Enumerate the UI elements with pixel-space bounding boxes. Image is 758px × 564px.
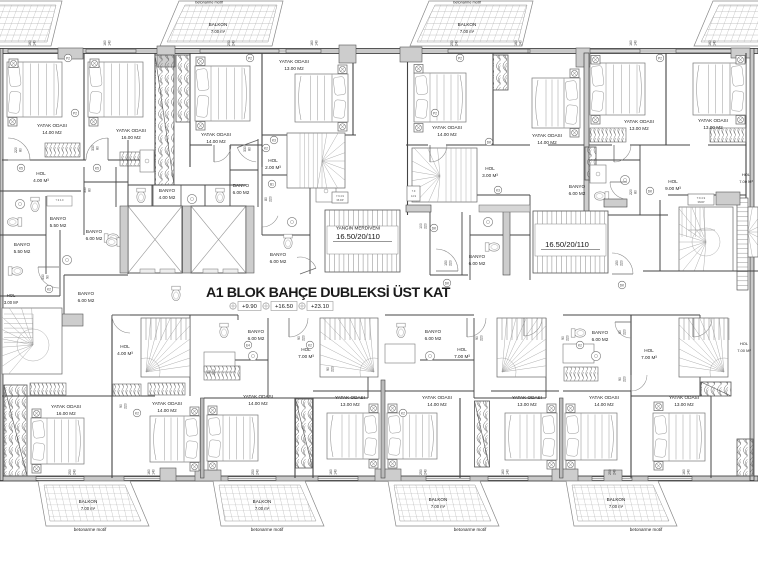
svg-text:160: 160	[310, 40, 314, 46]
svg-text:+16.50: +16.50	[275, 304, 293, 310]
svg-text:7.00 m²: 7.00 m²	[609, 504, 624, 509]
svg-text:P2: P2	[433, 111, 437, 115]
svg-text:140: 140	[315, 40, 319, 46]
svg-text:13.00 M2: 13.00 M2	[674, 402, 694, 407]
svg-text:K5: K5	[19, 166, 23, 170]
svg-text:P2: P2	[458, 56, 462, 60]
svg-text:160: 160	[629, 40, 633, 46]
svg-text:14.9: 14.9	[411, 194, 417, 198]
svg-text:250: 250	[608, 469, 612, 475]
svg-text:YATAK ODASI: YATAK ODASI	[201, 132, 231, 137]
svg-text:220: 220	[212, 369, 216, 375]
svg-text:160: 160	[682, 469, 686, 475]
svg-text:P2: P2	[66, 56, 70, 60]
svg-text:6.00 M2: 6.00 M2	[469, 261, 486, 266]
svg-text:160: 160	[514, 40, 518, 46]
svg-text:K3: K3	[272, 138, 276, 142]
svg-text:3.00 M³: 3.00 M³	[482, 173, 498, 178]
svg-text:BANYO: BANYO	[78, 291, 95, 296]
svg-text:YANGIN MERDİVENİ: YANGIN MERDİVENİ	[336, 225, 380, 231]
svg-text:YATAK ODASI: YATAK ODASI	[624, 119, 654, 124]
svg-text:BANYO: BANYO	[425, 329, 442, 334]
svg-text:90: 90	[561, 336, 565, 340]
svg-text:90: 90	[618, 377, 622, 381]
svg-text:330: 330	[83, 187, 87, 193]
svg-text:YATAK ODASI: YATAK ODASI	[589, 395, 619, 400]
svg-text:YATAK ODASI: YATAK ODASI	[432, 125, 462, 130]
svg-text:K3: K3	[496, 188, 500, 192]
svg-text:220: 220	[629, 189, 633, 195]
svg-text:240: 240	[73, 469, 77, 475]
svg-text:150: 150	[615, 260, 619, 266]
svg-text:YATAK ODASI: YATAK ODASI	[51, 404, 81, 409]
svg-text:220: 220	[620, 260, 624, 266]
svg-text:90: 90	[326, 367, 330, 371]
svg-text:B1: B1	[270, 182, 274, 186]
svg-text:BANYO: BANYO	[469, 254, 486, 259]
svg-text:220: 220	[566, 335, 570, 341]
svg-text:16.00 M2: 16.00 M2	[56, 411, 76, 416]
svg-text:140: 140	[506, 469, 510, 475]
svg-text:E4: E4	[246, 343, 250, 347]
svg-text:240: 240	[455, 40, 459, 46]
svg-text:HOL: HOL	[644, 348, 654, 353]
svg-text:P2: P2	[658, 56, 662, 60]
svg-text:3.00 M³: 3.00 M³	[4, 300, 19, 305]
svg-text:140: 140	[152, 469, 156, 475]
svg-text:HOL: HOL	[485, 166, 495, 171]
svg-text:BANYO: BANYO	[86, 229, 103, 234]
svg-text:13.00 M2: 13.00 M2	[340, 402, 360, 407]
svg-text:140: 140	[634, 40, 638, 46]
svg-text:BANYO: BANYO	[14, 242, 31, 247]
svg-text:250: 250	[227, 40, 231, 46]
svg-text:5.50 M2: 5.50 M2	[14, 249, 31, 254]
svg-text:P2: P2	[73, 111, 77, 115]
svg-text:betonarme motif: betonarme motif	[454, 527, 487, 532]
svg-text:80: 80	[248, 147, 252, 151]
svg-text:160: 160	[28, 40, 32, 46]
svg-text:7.00 M³: 7.00 M³	[298, 354, 314, 359]
svg-text:220: 220	[424, 223, 428, 229]
svg-text:6.00 M2: 6.00 M2	[270, 259, 287, 264]
svg-text:9.00 M³: 9.00 M³	[665, 186, 681, 191]
svg-text:80: 80	[88, 188, 92, 192]
svg-text:80: 80	[19, 148, 23, 152]
svg-text:140: 140	[108, 40, 112, 46]
svg-text:K2: K2	[135, 411, 139, 415]
svg-text:HOL: HOL	[740, 341, 749, 346]
svg-text:HOL: HOL	[457, 347, 467, 352]
svg-text:16.00 M2: 16.00 M2	[121, 135, 141, 140]
svg-text:330: 330	[91, 145, 95, 151]
svg-text:betonarme motif: betonarme motif	[453, 1, 481, 5]
svg-text:BALKON: BALKON	[253, 499, 272, 504]
svg-text:14.00 M2: 14.00 M2	[206, 139, 226, 144]
svg-text:240: 240	[256, 469, 260, 475]
svg-text:240: 240	[613, 469, 617, 475]
svg-text:16.50/20/110: 16.50/20/110	[545, 240, 589, 249]
svg-text:P2: P2	[248, 56, 252, 60]
svg-text:13.00 M2: 13.00 M2	[703, 125, 723, 130]
svg-text:90: 90	[119, 404, 123, 408]
svg-text:BANYO: BANYO	[569, 184, 586, 189]
svg-text:HOL: HOL	[36, 171, 46, 176]
svg-text:14.00 M2: 14.00 M2	[437, 132, 457, 137]
svg-text:K2: K2	[401, 411, 405, 415]
svg-text:140: 140	[519, 40, 523, 46]
svg-text:160: 160	[708, 40, 712, 46]
svg-text:BANYO: BANYO	[233, 183, 250, 188]
svg-text:80: 80	[634, 190, 638, 194]
svg-text:250: 250	[419, 469, 423, 475]
svg-text:160: 160	[329, 469, 333, 475]
svg-text:150: 150	[444, 260, 448, 266]
svg-text:160: 160	[103, 40, 107, 46]
svg-text:7.00 M³: 7.00 M³	[454, 354, 470, 359]
svg-text:250: 250	[450, 40, 454, 46]
svg-text:K2: K2	[47, 287, 51, 291]
svg-text:250: 250	[251, 469, 255, 475]
svg-text:HOL: HOL	[742, 172, 751, 177]
svg-text:BANYO: BANYO	[270, 252, 287, 257]
svg-text:YATAK ODASI: YATAK ODASI	[279, 59, 309, 64]
svg-text:HOL: HOL	[668, 179, 678, 184]
svg-text:14.00 M2: 14.00 M2	[537, 140, 557, 145]
svg-text:K2: K2	[264, 146, 268, 150]
svg-text:K2: K2	[308, 343, 312, 347]
svg-text:7.00 M³: 7.00 M³	[641, 355, 657, 360]
svg-text:7.9: 7.9	[412, 189, 416, 193]
svg-text:BALKON: BALKON	[209, 22, 228, 27]
svg-text:80: 80	[264, 197, 268, 201]
svg-text:14.00 M2: 14.00 M2	[248, 401, 268, 406]
svg-text:7.00 m²: 7.00 m²	[81, 506, 96, 511]
svg-text:4.00 M³: 4.00 M³	[117, 351, 133, 356]
svg-text:250: 250	[68, 469, 72, 475]
svg-text:140: 140	[713, 40, 717, 46]
svg-text:220: 220	[331, 366, 335, 372]
svg-text:7.00 M³: 7.00 M³	[739, 179, 753, 184]
svg-text:220: 220	[449, 260, 453, 266]
svg-text:6.00 M2: 6.00 M2	[78, 298, 95, 303]
svg-text:7.9 4.9: 7.9 4.9	[56, 198, 64, 202]
svg-text:YATAK ODASI: YATAK ODASI	[422, 395, 452, 400]
svg-text:BALKON: BALKON	[79, 499, 98, 504]
svg-text:80: 80	[96, 146, 100, 150]
svg-text:36DP: 36DP	[698, 200, 705, 204]
svg-text:K5: K5	[95, 166, 99, 170]
svg-text:220: 220	[480, 335, 484, 341]
svg-text:14.00 M2: 14.00 M2	[42, 130, 62, 135]
svg-text:160: 160	[501, 469, 505, 475]
svg-text:YATAK ODASI: YATAK ODASI	[243, 394, 273, 399]
svg-text:160: 160	[147, 469, 151, 475]
svg-text:7.00 m²: 7.00 m²	[211, 29, 226, 34]
svg-text:16.50/20/110: 16.50/20/110	[336, 232, 380, 241]
svg-text:90: 90	[46, 275, 50, 279]
svg-text:140: 140	[334, 469, 338, 475]
svg-text:YATAK ODASI: YATAK ODASI	[532, 133, 562, 138]
svg-text:6.00 M2: 6.00 M2	[86, 236, 103, 241]
svg-text:7.00 M³: 7.00 M³	[737, 348, 751, 353]
svg-text:+9.90: +9.90	[242, 304, 257, 310]
svg-text:220: 220	[623, 376, 627, 382]
svg-text:A1 BLOK BAHÇE DUBLEKSİ ÜST KAT: A1 BLOK BAHÇE DUBLEKSİ ÜST KAT	[206, 284, 451, 301]
svg-text:YATAK ODASI: YATAK ODASI	[37, 123, 67, 128]
svg-text:6.00 M2: 6.00 M2	[592, 337, 609, 342]
svg-text:100: 100	[419, 223, 423, 229]
svg-text:6.00 M2: 6.00 M2	[425, 336, 442, 341]
svg-text:6.00 M2: 6.00 M2	[233, 190, 250, 195]
svg-text:6.00 M2: 6.00 M2	[248, 336, 265, 341]
svg-text:+23.10: +23.10	[311, 304, 329, 310]
svg-text:13.00 M2: 13.00 M2	[284, 66, 304, 71]
svg-text:5.50 M2: 5.50 M2	[50, 223, 67, 228]
svg-text:220: 220	[302, 335, 306, 341]
svg-text:YATAK ODASI: YATAK ODASI	[335, 395, 365, 400]
svg-text:140: 140	[33, 40, 37, 46]
svg-text:betonarme motif: betonarme motif	[195, 1, 223, 5]
svg-text:13.00 M2: 13.00 M2	[517, 402, 537, 407]
svg-text:7.9 4.9: 7.9 4.9	[336, 194, 344, 198]
svg-text:4.00 M³: 4.00 M³	[33, 178, 49, 183]
svg-text:220: 220	[269, 196, 273, 202]
svg-text:330: 330	[243, 146, 247, 152]
svg-text:6.00 M2: 6.00 M2	[569, 191, 586, 196]
svg-text:140: 140	[687, 469, 691, 475]
svg-text:BANYO: BANYO	[50, 216, 67, 221]
svg-text:90: 90	[475, 336, 479, 340]
svg-text:YATAK ODASI: YATAK ODASI	[152, 401, 182, 406]
svg-text:YATAK ODASI: YATAK ODASI	[669, 395, 699, 400]
svg-text:betonarme motif: betonarme motif	[630, 527, 663, 532]
svg-text:220: 220	[124, 403, 128, 409]
svg-text:90: 90	[297, 336, 301, 340]
svg-text:7.00 m²: 7.00 m²	[255, 506, 270, 511]
svg-text:220: 220	[14, 147, 18, 153]
svg-text:240: 240	[232, 40, 236, 46]
svg-text:HOL: HOL	[120, 344, 130, 349]
svg-text:betonarme motif: betonarme motif	[251, 527, 284, 532]
svg-text:BANYO: BANYO	[592, 330, 609, 335]
svg-text:HOL: HOL	[7, 293, 16, 298]
svg-text:14.00 M2: 14.00 M2	[427, 402, 447, 407]
svg-text:220: 220	[623, 329, 627, 335]
svg-text:14.00 M2: 14.00 M2	[594, 402, 614, 407]
svg-text:YATAK ODASI: YATAK ODASI	[698, 118, 728, 123]
svg-text:YATAK ODASI: YATAK ODASI	[116, 128, 146, 133]
svg-text:BALKON: BALKON	[458, 22, 477, 27]
svg-text:YATAK ODASI: YATAK ODASI	[512, 395, 542, 400]
svg-text:80: 80	[618, 330, 622, 334]
svg-text:betonarme motif: betonarme motif	[74, 527, 107, 532]
svg-text:330: 330	[41, 274, 45, 280]
svg-text:14.00 M2: 14.00 M2	[157, 408, 177, 413]
svg-text:240: 240	[424, 469, 428, 475]
svg-text:13.00 M2: 13.00 M2	[629, 126, 649, 131]
svg-text:BANYO: BANYO	[248, 329, 265, 334]
svg-text:90: 90	[207, 370, 211, 374]
svg-text:K2: K2	[578, 343, 582, 347]
svg-text:7.00 m²: 7.00 m²	[460, 29, 475, 34]
svg-text:BANYO: BANYO	[159, 188, 176, 193]
svg-text:BALKON: BALKON	[429, 497, 448, 502]
svg-text:7.00 m²: 7.00 m²	[431, 504, 446, 509]
svg-text:BALKON: BALKON	[607, 497, 626, 502]
svg-text:4.00 M2: 4.00 M2	[159, 195, 176, 200]
svg-text:2.00 M³: 2.00 M³	[265, 165, 281, 170]
svg-text:36 DP: 36 DP	[336, 198, 343, 202]
svg-text:HOL: HOL	[268, 158, 278, 163]
